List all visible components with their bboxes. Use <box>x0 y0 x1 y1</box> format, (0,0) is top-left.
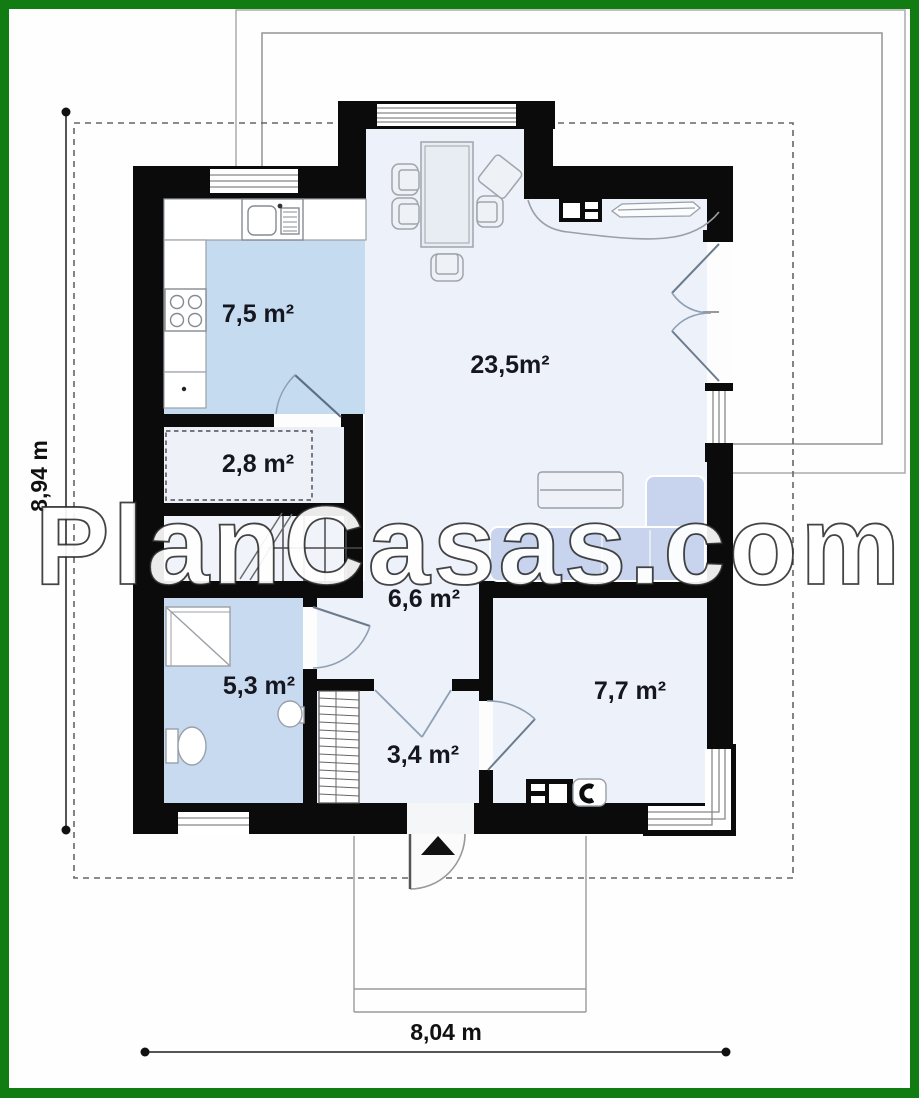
svg-text:3,4 m²: 3,4 m² <box>387 741 459 769</box>
svg-text:23,5m²: 23,5m² <box>470 351 549 379</box>
svg-text:5,3 m²: 5,3 m² <box>223 672 295 700</box>
svg-text:PlanCasas.com: PlanCasas.com <box>35 483 903 608</box>
svg-text:2,8 m²: 2,8 m² <box>222 450 294 478</box>
svg-text:8,04 m: 8,04 m <box>410 1019 482 1045</box>
svg-text:7,7 m²: 7,7 m² <box>594 677 666 705</box>
svg-text:7,5 m²: 7,5 m² <box>222 300 294 328</box>
